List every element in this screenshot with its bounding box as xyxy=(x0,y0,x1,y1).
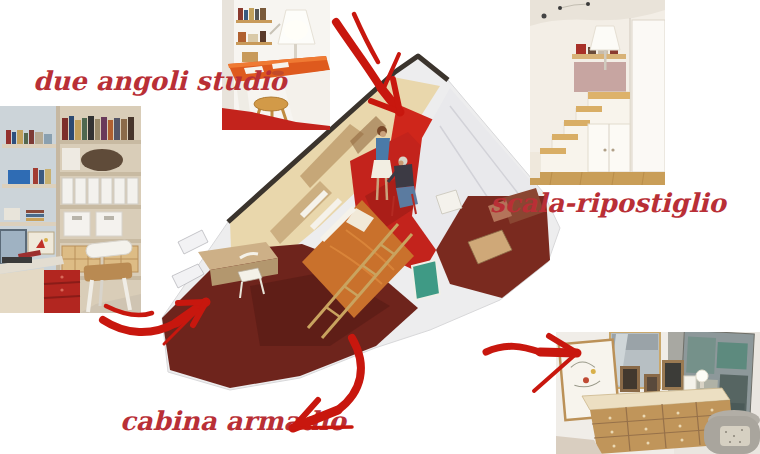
tv-screen xyxy=(412,260,440,300)
photo-walk-in-closet xyxy=(556,332,760,454)
wood-floor xyxy=(530,172,665,185)
loft-wall xyxy=(574,62,626,92)
photo-study-desk xyxy=(222,0,330,130)
picture-frame xyxy=(28,232,54,254)
door xyxy=(632,20,665,172)
red-drawer-unit xyxy=(44,270,80,313)
basket xyxy=(81,149,123,171)
label-due-angoli-studio: due angoli studio xyxy=(33,66,287,96)
photo-stair-storage xyxy=(530,0,665,185)
armchair xyxy=(704,410,760,454)
under-stair-cupboard xyxy=(588,124,630,172)
label-scala-ripostiglio: scala-ripostiglio xyxy=(490,188,726,218)
label-cabina-armadio: cabina armadio xyxy=(120,406,346,436)
apartment-sketch xyxy=(150,46,565,411)
photo-study-bookshelf xyxy=(0,106,141,313)
collage-canvas: due angoli studio scala-ripostiglio cabi… xyxy=(0,0,760,454)
